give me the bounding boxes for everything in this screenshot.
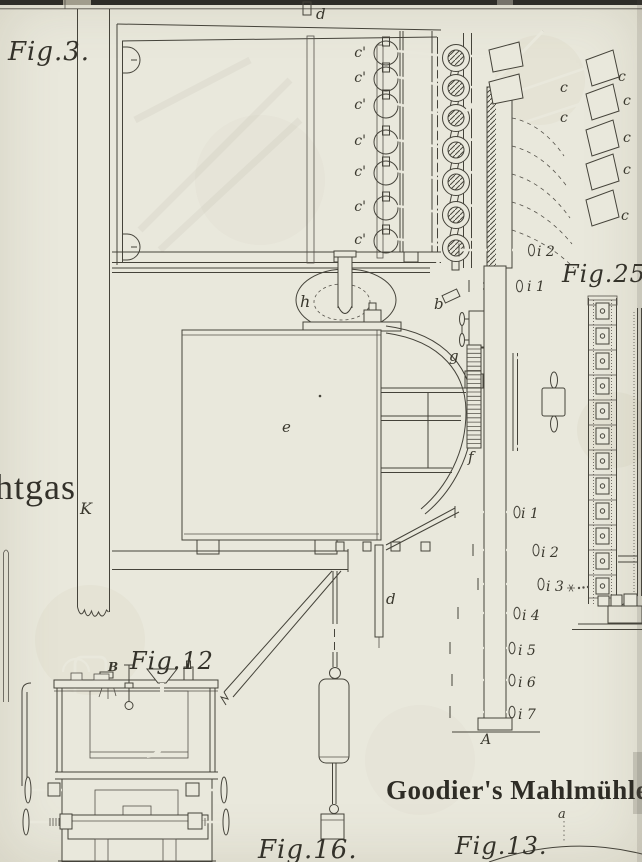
fig16-weight	[319, 571, 349, 839]
fig12-apparatus	[22, 657, 229, 862]
label-stamp-head-6: c	[623, 162, 631, 178]
cone-pulley	[513, 353, 565, 451]
label-pin-i4: i 4	[522, 608, 540, 624]
label-stamp-head-2: c	[560, 80, 568, 96]
label-pin-i7: i 7	[518, 707, 536, 723]
label-stamp-head-1: c	[618, 69, 626, 85]
label-pin-i6: i 6	[518, 675, 536, 691]
engraving-plate: Fig.3. d c' c' c' c' c' c' c' c c c c c …	[0, 0, 642, 862]
label-post-A: A	[479, 732, 491, 748]
label-pin-i1: i 1	[521, 506, 539, 522]
label-column-K: K	[79, 499, 93, 518]
label-fig13-a: a	[558, 807, 566, 822]
label-stamp-head-5: c	[623, 130, 631, 146]
plate-artwork: Fig.3. d c' c' c' c' c' c' c' c c c c c …	[0, 0, 642, 862]
label-stamp-head-4: c	[560, 110, 568, 126]
label-duct-top: d	[316, 5, 326, 23]
label-fig25: Fig.25.	[561, 260, 642, 288]
label-fig12: Fig.12	[129, 647, 214, 675]
label-cam-roller-1: c'	[354, 45, 366, 61]
label-fig16: Fig.16.	[257, 835, 358, 862]
reference-star	[567, 585, 589, 592]
label-cam-roller-3: c'	[354, 97, 366, 113]
cam-chain	[434, 45, 470, 271]
label-pin-i5: i 5	[518, 643, 536, 659]
chest-e	[182, 330, 381, 554]
label-fig13: Fig.13.	[454, 832, 548, 860]
label-cam-roller-6: c'	[354, 199, 366, 215]
label-cam-roller-5: c'	[354, 164, 366, 180]
label-chest-e: e	[282, 418, 291, 436]
label-duct-lower: d	[386, 590, 396, 608]
plate-title: Goodier's Mahlmühle	[386, 775, 642, 805]
label-pulley-h: h	[300, 292, 310, 311]
label-pin-i2: i 2	[541, 545, 559, 561]
label-gas-fragment: htgas	[0, 467, 76, 507]
label-pin-i3: i 3	[546, 579, 564, 595]
label-cam-roller-7: c'	[354, 232, 366, 248]
label-crank-b: b	[434, 295, 444, 313]
label-cam-roller-2: c'	[354, 70, 366, 86]
label-pin-i1-top: i 1	[527, 279, 545, 295]
label-fig12-B: B	[107, 660, 118, 674]
post-A	[452, 266, 540, 732]
label-rack-f: f	[467, 448, 476, 466]
cam-rollers	[374, 37, 398, 253]
label-cam-roller-4: c'	[354, 133, 366, 149]
label-pin-i2-top: i 2	[537, 244, 555, 260]
label-pinion-g: g	[449, 347, 459, 365]
label-fig3: Fig.3.	[7, 37, 90, 67]
label-stamp-head-3: c	[623, 93, 631, 109]
label-stamp-head-7: c	[621, 208, 629, 224]
